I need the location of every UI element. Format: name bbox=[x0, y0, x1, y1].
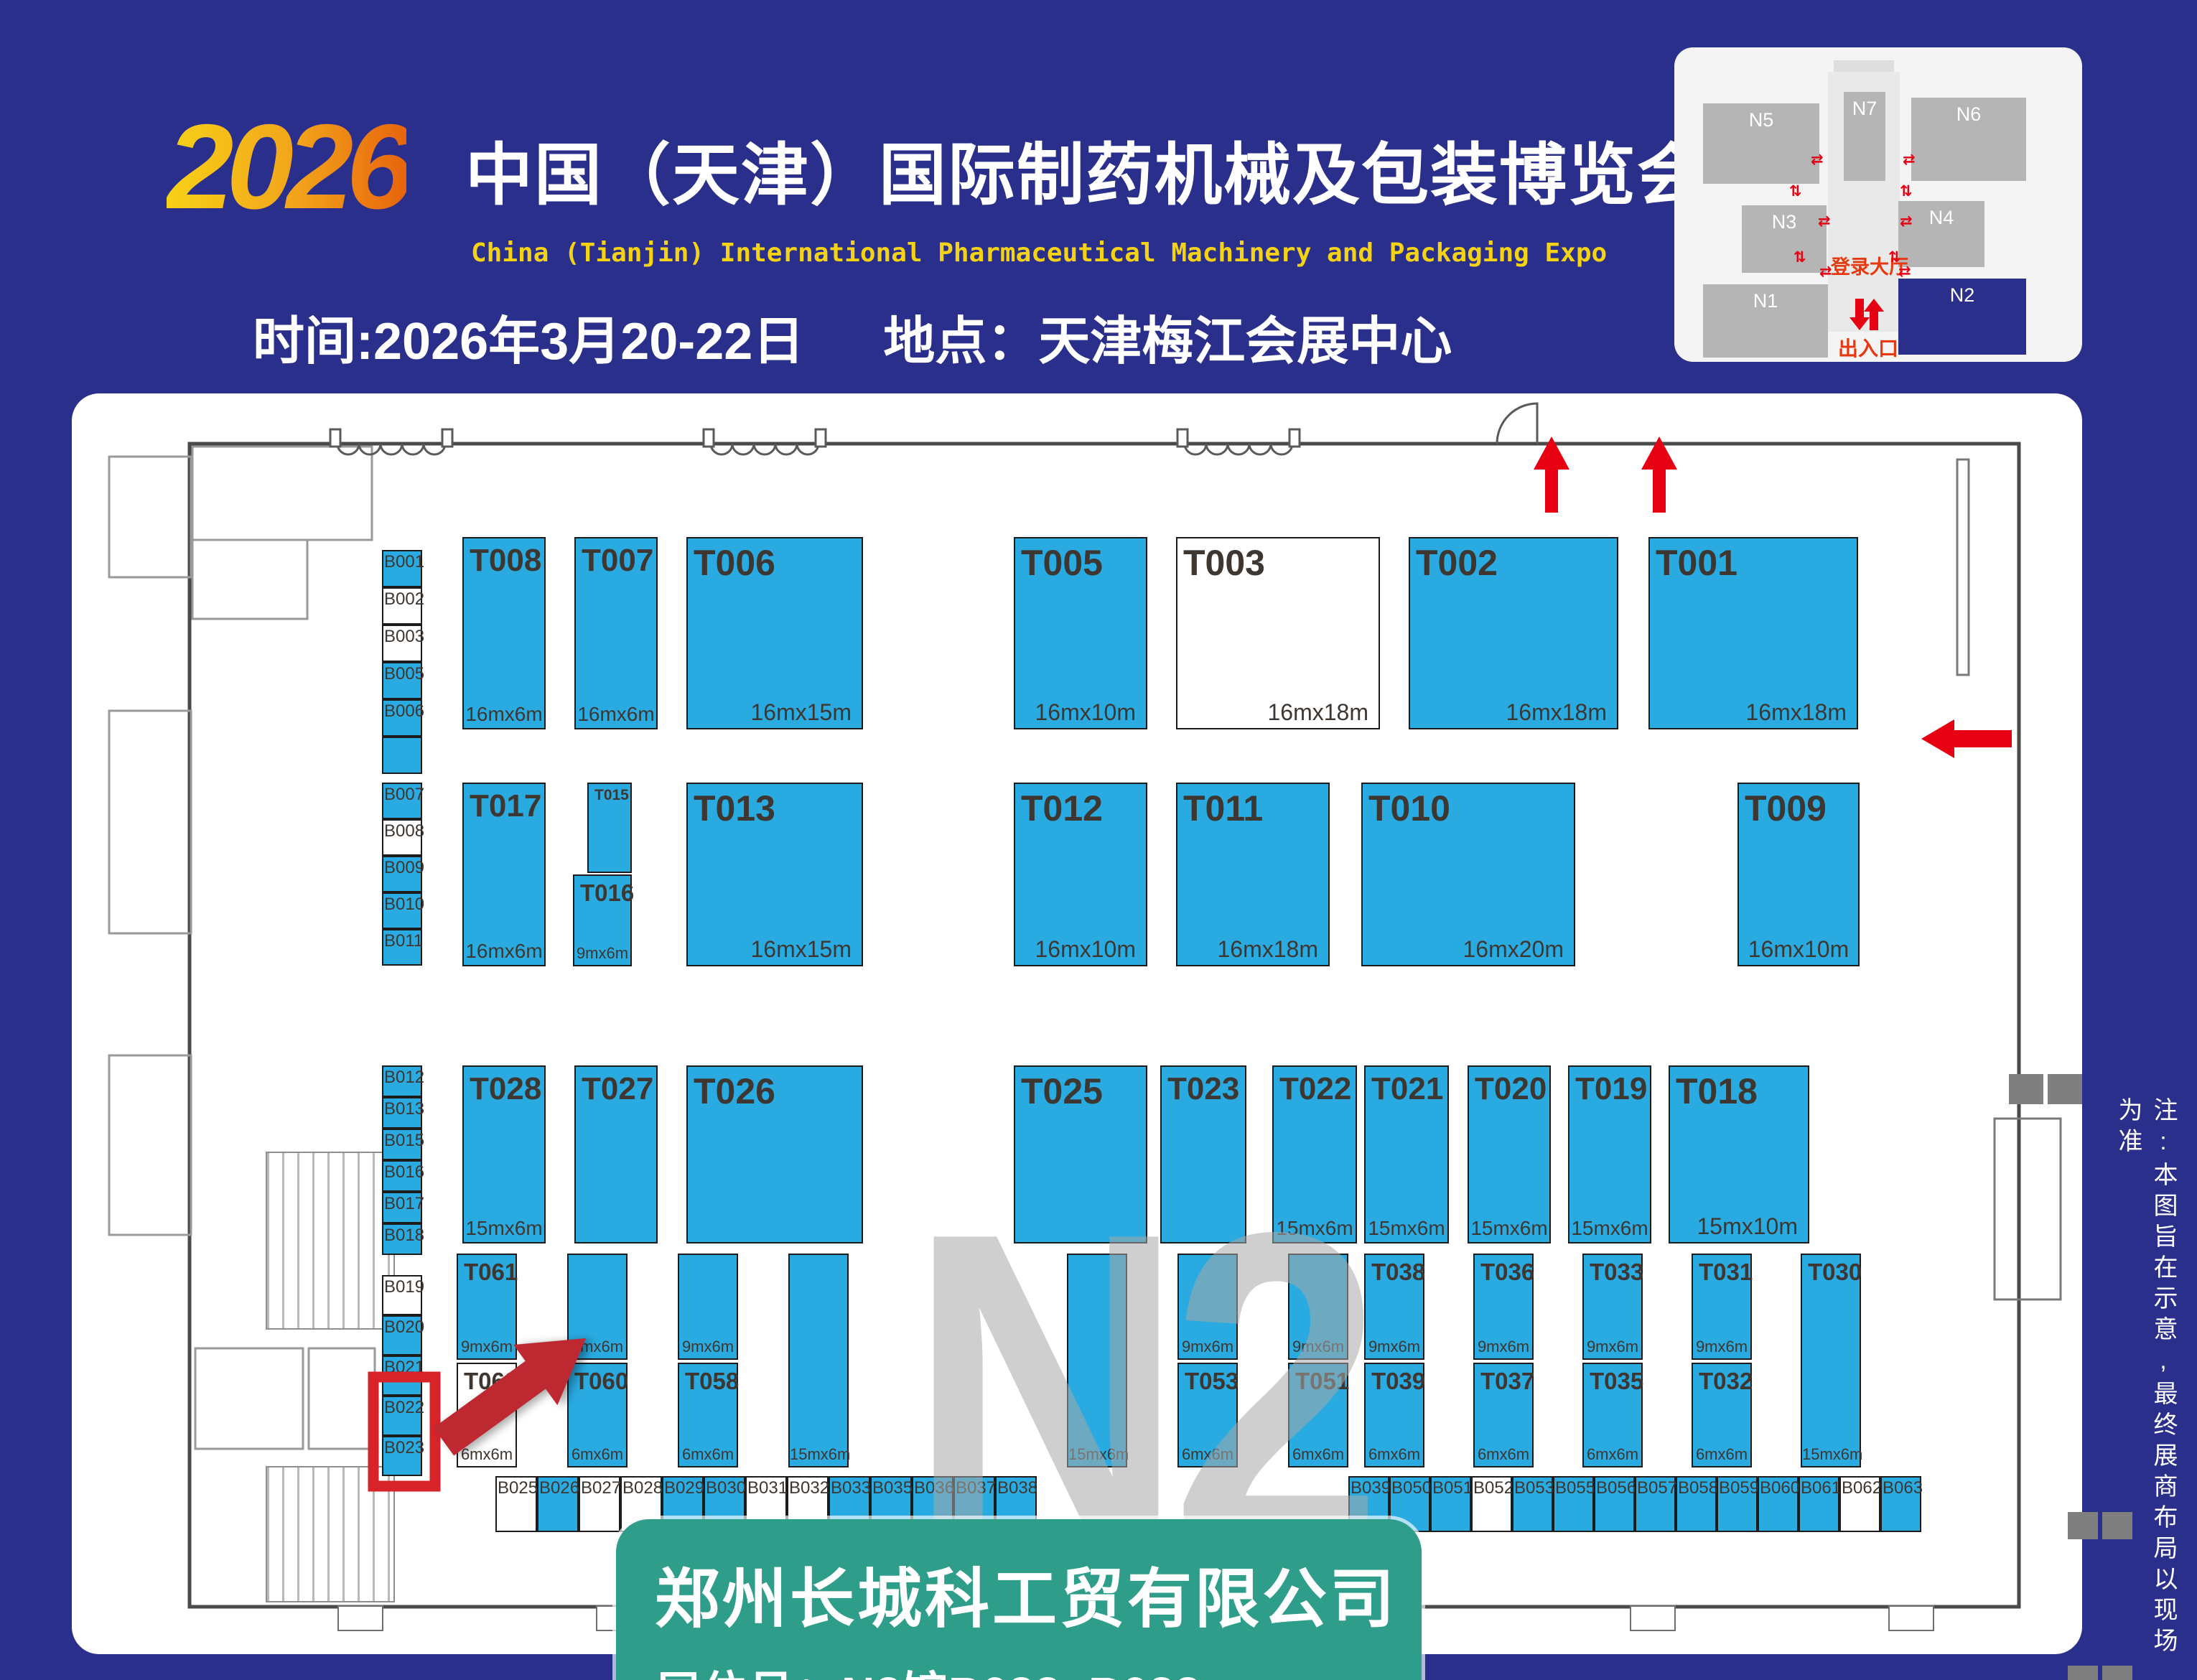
booth-T015: T015 bbox=[587, 783, 632, 873]
booth-label: T011 bbox=[1183, 786, 1263, 831]
booth-T008: T00816mx6m bbox=[462, 537, 546, 729]
booth-label: T025 bbox=[1021, 1069, 1103, 1114]
booth-size: 6mx6m bbox=[679, 1445, 737, 1464]
entrance-arrow-up-icon bbox=[1641, 437, 1677, 513]
booth-size: 15mx10m bbox=[1670, 1213, 1808, 1240]
booth-B056: B056 bbox=[1594, 1476, 1635, 1532]
booth-T062: T0626mx6m bbox=[457, 1363, 517, 1467]
restroom-block-lower bbox=[266, 1466, 395, 1602]
booth-B002: B002 bbox=[382, 587, 422, 625]
booth-T002: T00216mx18m bbox=[1409, 537, 1618, 729]
exhibitor-company-name: 郑州长城科工贸有限公司 bbox=[655, 1546, 1422, 1640]
booth-label: T036 bbox=[1480, 1257, 1534, 1287]
exhibitor-welcome-text: 欢迎莅临参观 bbox=[1223, 1676, 1395, 1680]
booth-T012: T01216mx10m bbox=[1014, 783, 1147, 966]
booth-T027: T027 bbox=[574, 1065, 658, 1243]
booth-label: T017 bbox=[470, 786, 541, 826]
page-subtitle-en: China (Tianjin) International Pharmaceut… bbox=[471, 238, 1607, 268]
booth-label: T038 bbox=[1371, 1257, 1425, 1287]
booth-size: 16mx20m bbox=[1363, 936, 1574, 963]
booth-size: 15mx6m bbox=[790, 1445, 847, 1464]
expo-floorplan-poster: 2026 中国（天津）国际制药机械及包装博览会 China (Tianjin) … bbox=[0, 0, 2197, 1680]
minimap-hall-N3: N3 bbox=[1742, 205, 1827, 273]
expo-logo-2026: 2026 bbox=[167, 106, 406, 227]
restroom-block-upper bbox=[266, 1152, 395, 1330]
booth-label: T027 bbox=[582, 1069, 653, 1109]
minimap-hall-N1: N1 bbox=[1703, 284, 1828, 358]
booth-B053: B053 bbox=[1512, 1476, 1553, 1532]
booth-B003: B003 bbox=[382, 625, 422, 662]
booth-label: T007 bbox=[582, 541, 653, 580]
minimap-hall-N2: N2 bbox=[1898, 279, 2026, 355]
booth-B010: B010 bbox=[382, 892, 422, 929]
booth-T032: T0326mx6m bbox=[1692, 1363, 1752, 1467]
booth-label: T015 bbox=[594, 786, 629, 805]
booth-size: 16mx6m bbox=[464, 940, 544, 963]
booth-B059: B059 bbox=[1717, 1476, 1758, 1532]
booth-size: 9mx6m bbox=[458, 1338, 516, 1356]
booth-B018: B018 bbox=[382, 1223, 422, 1255]
booth-T011: T01116mx18m bbox=[1176, 783, 1330, 966]
minimap-exit-label: 出入口 bbox=[1838, 333, 1898, 362]
booth-label: T006 bbox=[694, 541, 775, 586]
minimap-transfer-arrow-icon: ⇄ bbox=[1900, 214, 1913, 229]
booth-size: 9mx6m bbox=[1475, 1338, 1532, 1356]
booth-B051: B051 bbox=[1430, 1476, 1471, 1532]
booth-size: 16mx15m bbox=[688, 936, 862, 963]
booth-label: T019 bbox=[1575, 1069, 1647, 1109]
booth-label: T026 bbox=[694, 1069, 775, 1114]
booth-label: T028 bbox=[470, 1069, 541, 1109]
stair-block-icon bbox=[2102, 1512, 2132, 1539]
schedule-text: 时间:2026年3月20-22日 bbox=[253, 313, 804, 370]
booth-size: 9mx6m bbox=[679, 1338, 737, 1356]
booth-B019: B019 bbox=[382, 1275, 422, 1315]
booth-T005: T00516mx10m bbox=[1014, 537, 1147, 729]
booth-label: T033 bbox=[1590, 1257, 1643, 1287]
booth-B027: B027 bbox=[579, 1476, 620, 1532]
entrance-arrow-left-icon bbox=[1921, 719, 2012, 758]
wall-column-stub bbox=[1888, 1605, 1934, 1631]
booth-B006: B006 bbox=[382, 699, 422, 737]
minimap-transfer-arrow-icon: ⇅ bbox=[1888, 250, 1901, 265]
minimap-transfer-arrow-icon: ⇄ bbox=[1811, 152, 1824, 167]
booth-size: 9mx6m bbox=[1584, 1338, 1641, 1356]
minimap-transfer-arrow-icon: ⇄ bbox=[1819, 264, 1832, 279]
booth-label: T003 bbox=[1183, 541, 1265, 586]
booth-T016: T0169mx6m bbox=[573, 874, 632, 966]
booth-label: T021 bbox=[1371, 1069, 1443, 1109]
booth-T028: T02815mx6m bbox=[462, 1065, 546, 1243]
booth-T018: T01815mx10m bbox=[1669, 1065, 1809, 1243]
booth-label: T035 bbox=[1590, 1366, 1643, 1396]
booth-size: 15mx6m bbox=[1802, 1445, 1860, 1464]
stair-block-icon bbox=[2068, 1666, 2098, 1680]
booth-size: 6mx6m bbox=[569, 1445, 626, 1464]
booth-size: 15mx6m bbox=[464, 1217, 544, 1240]
booth-size: 9mx6m bbox=[569, 1338, 626, 1356]
booth-label: T010 bbox=[1368, 786, 1450, 831]
booth-size: 15mx6m bbox=[1366, 1217, 1447, 1240]
booth-size: 16mx18m bbox=[1177, 936, 1328, 963]
booth-unlabeled-26: 9mx6m bbox=[567, 1254, 628, 1360]
booth-size: 6mx6m bbox=[1475, 1445, 1532, 1464]
booth-B009: B009 bbox=[382, 856, 422, 892]
booth-T036: T0369mx6m bbox=[1473, 1254, 1534, 1360]
booth-label: T022 bbox=[1279, 1069, 1351, 1109]
booth-label: T018 bbox=[1676, 1069, 1758, 1114]
booth-label: T060 bbox=[574, 1366, 628, 1396]
booth-B052: B052 bbox=[1471, 1476, 1512, 1532]
booth-B055: B055 bbox=[1553, 1476, 1594, 1532]
booth-B058: B058 bbox=[1676, 1476, 1717, 1532]
booth-size: 16mx18m bbox=[1177, 699, 1379, 726]
booth-B001: B001 bbox=[382, 550, 422, 587]
booth-B021: B021 bbox=[382, 1355, 422, 1396]
booth-label: T058 bbox=[685, 1366, 739, 1396]
booth-B022: B022 bbox=[382, 1396, 422, 1436]
booth-T038: T0389mx6m bbox=[1364, 1254, 1424, 1360]
minimap-hall-N7: N7 bbox=[1844, 92, 1885, 181]
minimap-transfer-arrow-icon: ⇄ bbox=[1898, 264, 1911, 279]
escalator-block-icon bbox=[2009, 1074, 2043, 1104]
booth-label: T001 bbox=[1656, 541, 1737, 586]
booth-size: 6mx6m bbox=[1584, 1445, 1641, 1464]
booth-B026: B026 bbox=[537, 1476, 579, 1532]
booth-B013: B013 bbox=[382, 1097, 422, 1129]
booth-T010: T01016mx20m bbox=[1361, 783, 1575, 966]
booth-unlabeled-27: 9mx6m bbox=[678, 1254, 738, 1360]
booth-T035: T0356mx6m bbox=[1582, 1363, 1643, 1467]
booth-label: T023 bbox=[1167, 1069, 1239, 1109]
wall-column-stub bbox=[337, 1605, 383, 1631]
booth-B005: B005 bbox=[382, 662, 422, 699]
booth-label: T037 bbox=[1480, 1366, 1534, 1396]
booth-label: T031 bbox=[1699, 1257, 1753, 1287]
booth-T017: T01716mx6m bbox=[462, 783, 546, 966]
disclaimer-note: 注:本图旨在示意,最终展商布局以现场为准 bbox=[2131, 1097, 2181, 1664]
minimap-transfer-arrow-icon: ⇅ bbox=[1793, 250, 1806, 265]
booth-T031: T0319mx6m bbox=[1692, 1254, 1752, 1360]
minimap-hall-N6: N6 bbox=[1911, 98, 2026, 181]
booth-T058: T0586mx6m bbox=[678, 1363, 738, 1467]
booth-label: T030 bbox=[1808, 1257, 1862, 1287]
stair-block-icon bbox=[2102, 1666, 2132, 1680]
booth-T003: T00316mx18m bbox=[1176, 537, 1380, 729]
booth-label: T012 bbox=[1021, 786, 1103, 831]
booth-B016: B016 bbox=[382, 1160, 422, 1192]
booth-size: 15mx6m bbox=[1469, 1217, 1549, 1240]
booth-unlabeled-b-5 bbox=[382, 737, 422, 774]
booth-size: 6mx6m bbox=[1693, 1445, 1750, 1464]
wall-column-stub bbox=[1630, 1605, 1676, 1631]
booth-B007: B007 bbox=[382, 783, 422, 819]
booth-label: T016 bbox=[580, 878, 634, 907]
booth-B008: B008 bbox=[382, 819, 422, 856]
booth-size: 16mx18m bbox=[1650, 699, 1857, 726]
booth-T061: T0619mx6m bbox=[457, 1254, 517, 1360]
booth-T037: T0376mx6m bbox=[1473, 1363, 1534, 1467]
booth-label: T008 bbox=[470, 541, 541, 580]
booth-label: T020 bbox=[1475, 1069, 1547, 1109]
venue-text: 地点：天津梅江会展中心 bbox=[883, 313, 1452, 370]
booth-B060: B060 bbox=[1758, 1476, 1799, 1532]
escalator-block-icon bbox=[2048, 1074, 2082, 1104]
booth-T021: T02115mx6m bbox=[1364, 1065, 1449, 1243]
booth-B057: B057 bbox=[1635, 1476, 1676, 1532]
booth-unlabeled-28: 15mx6m bbox=[788, 1254, 849, 1467]
exhibitor-booth-number: 展位号：N2馆B022+B023 bbox=[655, 1657, 1201, 1680]
site-minimap: N5N7N6N3N4N1N2 登录大厅 出入口 ⇄⇄⇅⇅⇄⇄⇅⇅⇄⇄ bbox=[1674, 47, 2082, 362]
booth-size: 16mx15m bbox=[688, 699, 862, 726]
booth-size: 9mx6m bbox=[574, 944, 630, 963]
booth-T060: T0606mx6m bbox=[567, 1363, 628, 1467]
booth-size: 16mx10m bbox=[1739, 936, 1858, 963]
booth-B023: B023 bbox=[382, 1436, 422, 1476]
booth-B025: B025 bbox=[495, 1476, 537, 1532]
booth-label: T013 bbox=[694, 786, 775, 831]
booth-B061: B061 bbox=[1799, 1476, 1839, 1532]
booth-label: T039 bbox=[1371, 1366, 1425, 1396]
minimap-transfer-arrow-icon: ⇅ bbox=[1900, 184, 1913, 199]
booth-label: T062 bbox=[464, 1366, 518, 1396]
booth-B015: B015 bbox=[382, 1129, 422, 1160]
booth-B063: B063 bbox=[1880, 1476, 1921, 1532]
booth-T009: T00916mx10m bbox=[1737, 783, 1860, 966]
booth-label: T005 bbox=[1021, 541, 1103, 586]
booth-size: 16mx10m bbox=[1015, 699, 1146, 726]
hall-floorplan: T00816mx6mT00716mx6mT00616mx15mT00516mx1… bbox=[72, 393, 2082, 1654]
booth-size: 16mx18m bbox=[1410, 699, 1617, 726]
booth-T033: T0339mx6m bbox=[1582, 1254, 1643, 1360]
booth-size: 6mx6m bbox=[458, 1445, 516, 1464]
minimap-transfer-arrow-icon: ⇄ bbox=[1818, 214, 1831, 229]
booth-size: 9mx6m bbox=[1366, 1338, 1423, 1356]
minimap-transfer-arrow-icon: ⇄ bbox=[1903, 152, 1916, 167]
stair-block-icon bbox=[2068, 1512, 2098, 1539]
exhibitor-callout: 郑州长城科工贸有限公司 展位号：N2馆B022+B023 欢迎莅临参观 bbox=[616, 1519, 1422, 1680]
booth-label: T002 bbox=[1416, 541, 1498, 586]
booth-T013: T01316mx15m bbox=[686, 783, 863, 966]
booth-B020: B020 bbox=[382, 1315, 422, 1355]
booth-label: T009 bbox=[1745, 786, 1827, 831]
minimap-hall-N4: N4 bbox=[1898, 201, 1984, 267]
minimap-transfer-arrow-icon: ⇅ bbox=[1789, 184, 1802, 199]
booth-T030: T03015mx6m bbox=[1801, 1254, 1861, 1467]
minimap-hall-N5: N5 bbox=[1703, 103, 1819, 184]
booth-B012: B012 bbox=[382, 1065, 422, 1097]
booth-T001: T00116mx18m bbox=[1648, 537, 1858, 729]
booth-size: 6mx6m bbox=[1366, 1445, 1423, 1464]
booth-label: T061 bbox=[464, 1257, 518, 1287]
booth-T007: T00716mx6m bbox=[574, 537, 658, 729]
date-venue-line: 时间:2026年3月20-22日地点：天津梅江会展中心 bbox=[253, 299, 1452, 374]
booth-B011: B011 bbox=[382, 929, 422, 966]
booth-size: 16mx10m bbox=[1015, 936, 1146, 963]
booth-B017: B017 bbox=[382, 1192, 422, 1223]
booth-T020: T02015mx6m bbox=[1468, 1065, 1551, 1243]
booth-size: 16mx6m bbox=[576, 703, 656, 726]
booth-size: 9mx6m bbox=[1693, 1338, 1750, 1356]
booth-T039: T0396mx6m bbox=[1364, 1363, 1424, 1467]
entrance-arrow-up-icon bbox=[1534, 437, 1569, 513]
booth-T006: T00616mx15m bbox=[686, 537, 863, 729]
booth-size: 15mx6m bbox=[1569, 1217, 1650, 1240]
booth-size: 16mx6m bbox=[464, 703, 544, 726]
booth-T019: T01915mx6m bbox=[1568, 1065, 1651, 1243]
booth-B062: B062 bbox=[1839, 1476, 1880, 1532]
booth-label: T032 bbox=[1699, 1366, 1753, 1396]
page-title: 中国（天津）国际制药机械及包装博览会 bbox=[465, 121, 1706, 218]
booth-T026: T026 bbox=[686, 1065, 863, 1243]
